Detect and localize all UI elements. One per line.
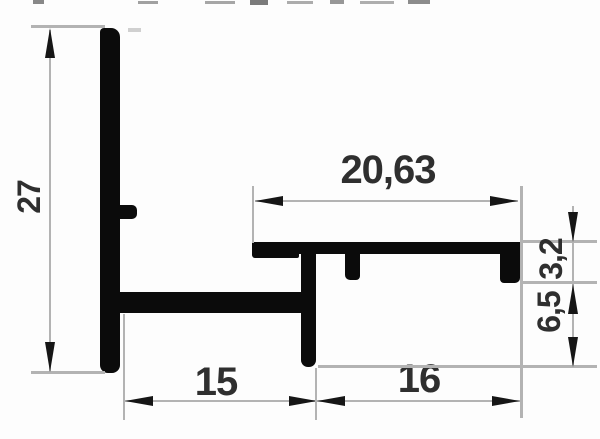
dim-topwidth-extension-right bbox=[520, 186, 523, 418]
profile-center-stem bbox=[301, 249, 316, 367]
arrow-up-icon bbox=[45, 28, 55, 58]
arrow-right-icon bbox=[492, 396, 520, 406]
dim-height-extension-top bbox=[31, 25, 105, 28]
dim-label-height: 27 bbox=[9, 170, 49, 224]
profile-vertical-leg bbox=[100, 28, 120, 373]
scan-artifact bbox=[330, 0, 344, 4]
dim-label-flange-height: 3,2 bbox=[531, 229, 571, 289]
scan-artifact bbox=[128, 28, 141, 32]
dim-label-bottom-left-width: 15 bbox=[186, 362, 246, 402]
scan-artifact bbox=[287, 1, 313, 4]
dim-height-extension-bottom bbox=[31, 371, 105, 374]
scan-artifact bbox=[250, 0, 268, 5]
drawing-canvas: 27 20,63 15 16 3,2 6,5 bbox=[0, 0, 600, 439]
arrow-left-icon bbox=[255, 196, 283, 206]
scan-artifact bbox=[205, 1, 235, 4]
arrow-right-icon bbox=[490, 196, 518, 206]
scan-artifact bbox=[138, 1, 158, 4]
dim-label-channel-depth: 6,5 bbox=[529, 282, 569, 342]
profile-flange-right-hook bbox=[500, 242, 520, 283]
arrow-left-icon bbox=[125, 396, 153, 406]
scan-artifact bbox=[360, 1, 394, 4]
dim-profile-bottom-extension bbox=[318, 365, 597, 368]
scan-artifact bbox=[408, 0, 430, 4]
dim-label-top-width: 20,63 bbox=[318, 149, 458, 191]
profile-flange-tab bbox=[345, 248, 360, 280]
arrow-left-icon bbox=[317, 396, 345, 406]
scan-artifact bbox=[33, 0, 44, 4]
dim-topwidth-line bbox=[255, 200, 518, 202]
arrow-down-icon bbox=[568, 337, 578, 367]
profile-leg-nub bbox=[119, 205, 137, 219]
dim-height-line bbox=[49, 30, 51, 371]
arrow-right-icon bbox=[289, 396, 317, 406]
arrow-down-icon bbox=[45, 342, 55, 372]
profile-flange-left-lip bbox=[252, 242, 299, 258]
dim-topwidth-extension-left bbox=[252, 186, 254, 243]
profile-bottom-web bbox=[114, 292, 316, 313]
dim-bottomright-extension bbox=[315, 368, 317, 420]
